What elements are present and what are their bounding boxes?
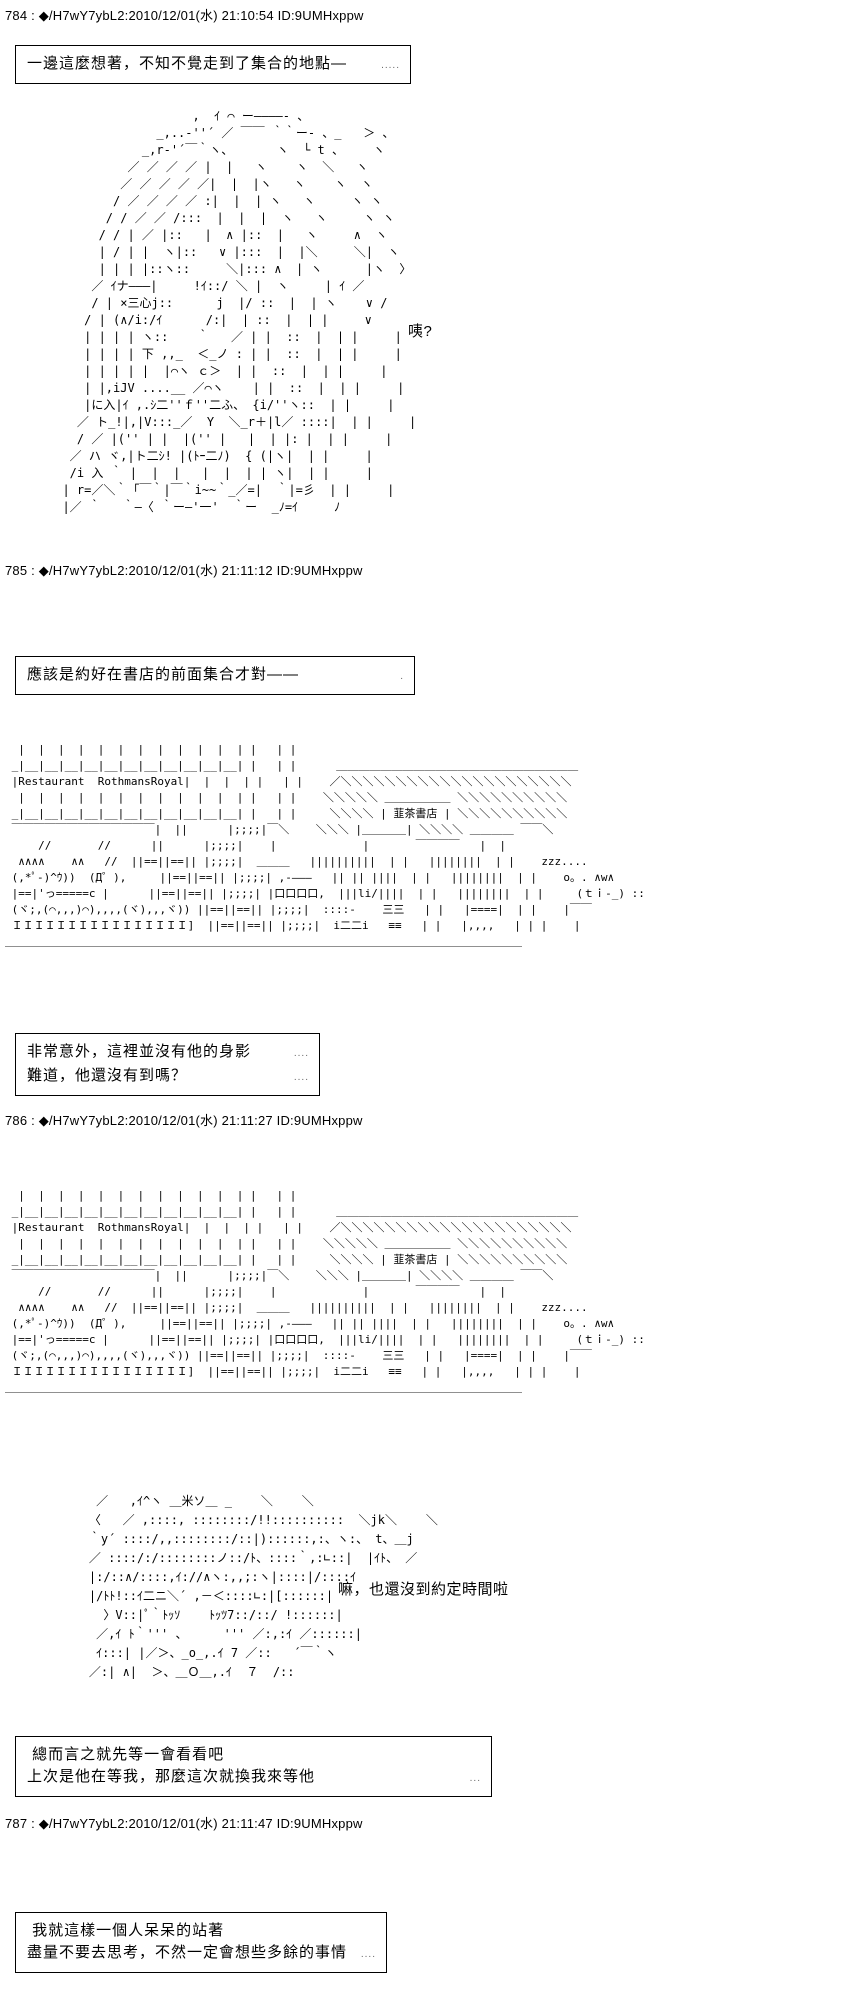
- trail-dots: ....: [361, 1944, 376, 1966]
- dialog-text: 應該是約好在書店的前面集合才對——: [27, 664, 299, 686]
- ascii-art-arrival-girl: , ｲ ⌒ ー――――- 、 _,..-''´ ／ ￣￣ ｀｀ー- 、_ ＞ 、…: [48, 108, 416, 516]
- trail-dots: ....: [294, 1043, 309, 1065]
- post-header-786: 786 : ◆/H7wY7ybL2:2010/12/01(水) 21:11:27…: [5, 1110, 363, 1129]
- dialog-line: 盡量不要去思考，不然一定會想些多餘的事情 ....: [27, 1942, 376, 1966]
- dialog-line: 難道，他還沒有到嗎？ ....: [27, 1065, 309, 1089]
- trail-dots: ...: [470, 1768, 481, 1790]
- trail-dots: ....: [294, 1067, 309, 1089]
- dialog-box-3: 非常意外，這裡並沒有他的身影 .... 難道，他還沒有到嗎？ ....: [15, 1033, 320, 1096]
- dialog-box-4: 總而言之就先等一會看看吧 上次是他在等我，那麼這次就換我來等他 ...: [15, 1736, 492, 1797]
- ascii-art-bookstore-street: | | | | | | | | | | | | | | | _|__|__|__…: [5, 742, 645, 950]
- dialog-text: 我就這樣一個人呆呆的站著: [27, 1920, 224, 1942]
- dialog-text: 盡量不要去思考，不然一定會想些多餘的事情: [27, 1942, 347, 1964]
- post-header-784: 784 : ◆/H7wY7ybL2:2010/12/01(水) 21:10:54…: [5, 5, 364, 24]
- dialog-line: 上次是他在等我，那麼這次就換我來等他 ...: [27, 1766, 481, 1790]
- trail-dots: .: [400, 666, 404, 688]
- trail-dots: .....: [381, 55, 400, 77]
- dialog-line: 非常意外，這裡並沒有他的身影 ....: [27, 1041, 309, 1065]
- dialog-line: 應該是約好在書店的前面集合才對—— .: [27, 664, 404, 688]
- dialog-box-5: 我就這樣一個人呆呆的站著 盡量不要去思考，不然一定會想些多餘的事情 ....: [15, 1912, 387, 1973]
- dialog-text: 一邊這麼想著，不知不覺走到了集合的地點—: [27, 53, 347, 75]
- ascii-art-bookstore-street-repeat: | | | | | | | | | | | | | | | _|__|__|__…: [5, 1188, 645, 1396]
- dialog-text: 總而言之就先等一會看看吧: [27, 1744, 224, 1766]
- dialog-text: 上次是他在等我，那麼這次就換我來等他: [27, 1766, 315, 1788]
- post-header-785: 785 : ◆/H7wY7ybL2:2010/12/01(水) 21:11:12…: [5, 560, 363, 579]
- dialog-text: 難道，他還沒有到嗎？: [27, 1065, 187, 1087]
- dialog-box-2: 應該是約好在書店的前面集合才對—— .: [15, 656, 415, 695]
- dialog-line: 一邊這麼想著，不知不覺走到了集合的地點— .....: [27, 53, 400, 77]
- speech-not-yet-time: 嘛，也還沒到約定時間啦: [338, 1578, 509, 1599]
- dialog-box-1: 一邊這麼想著，不知不覺走到了集合的地點— .....: [15, 45, 411, 84]
- post-header-787: 787 : ◆/H7wY7ybL2:2010/12/01(水) 21:11:47…: [5, 1813, 363, 1832]
- dialog-line: 總而言之就先等一會看看吧: [27, 1744, 481, 1766]
- dialog-text: 非常意外，這裡並沒有他的身影: [27, 1041, 251, 1063]
- aa-thread-page: 784 : ◆/H7wY7ybL2:2010/12/01(水) 21:10:54…: [0, 0, 850, 2000]
- speech-surprised: 咦?: [408, 320, 432, 341]
- dialog-line: 我就這樣一個人呆呆的站著: [27, 1920, 376, 1942]
